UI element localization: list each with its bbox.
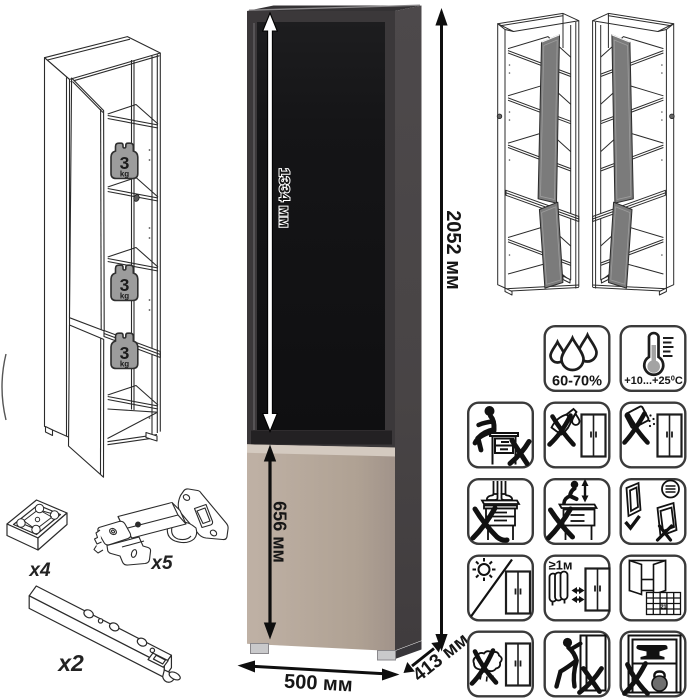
svg-text:x2: x2 xyxy=(56,650,84,676)
svg-text:2052 мм: 2052 мм xyxy=(442,210,464,290)
svg-text:x4: x4 xyxy=(28,560,51,581)
svg-text:≥1м: ≥1м xyxy=(549,558,573,573)
svg-text:500 мм: 500 мм xyxy=(284,671,354,697)
svg-text:21: 21 xyxy=(660,605,666,611)
svg-text:60-70%: 60-70% xyxy=(552,374,602,390)
svg-text:656 мм: 656 мм xyxy=(270,501,290,563)
svg-text:+10...+250C: +10...+250C xyxy=(624,374,683,387)
svg-text:x5: x5 xyxy=(150,553,173,574)
svg-text:1334 мм: 1334 мм xyxy=(276,168,293,228)
